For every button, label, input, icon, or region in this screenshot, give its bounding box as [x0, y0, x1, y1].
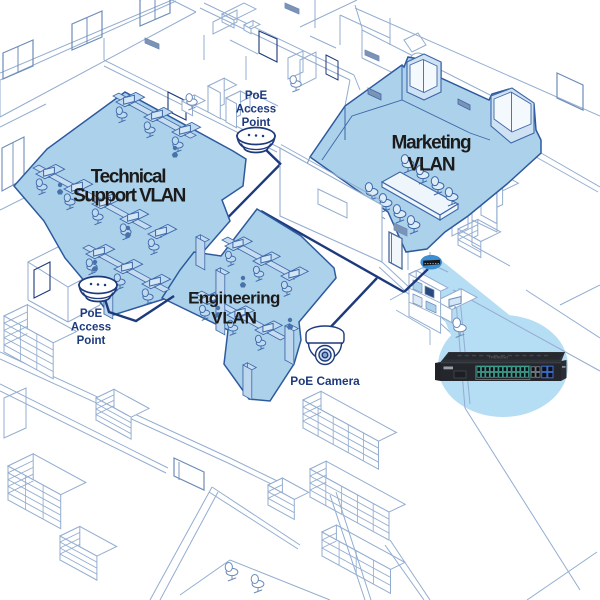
svg-text:VLAN: VLAN [211, 309, 256, 328]
svg-text:TRENDnet: TRENDnet [489, 355, 509, 360]
svg-text:Access: Access [71, 322, 111, 334]
svg-text:Point: Point [242, 117, 271, 129]
svg-text:Engineering: Engineering [188, 289, 280, 308]
svg-text:Access: Access [236, 104, 276, 116]
svg-text:Technical: Technical [91, 167, 166, 188]
svg-text:Point: Point [77, 335, 106, 347]
svg-text:PoE: PoE [245, 90, 268, 102]
svg-text:PoE: PoE [80, 308, 103, 320]
svg-text:Support VLAN: Support VLAN [73, 186, 186, 207]
svg-text:Marketing: Marketing [392, 133, 472, 154]
svg-text:PoE Camera: PoE Camera [290, 374, 360, 388]
svg-text:VLAN: VLAN [408, 155, 455, 176]
